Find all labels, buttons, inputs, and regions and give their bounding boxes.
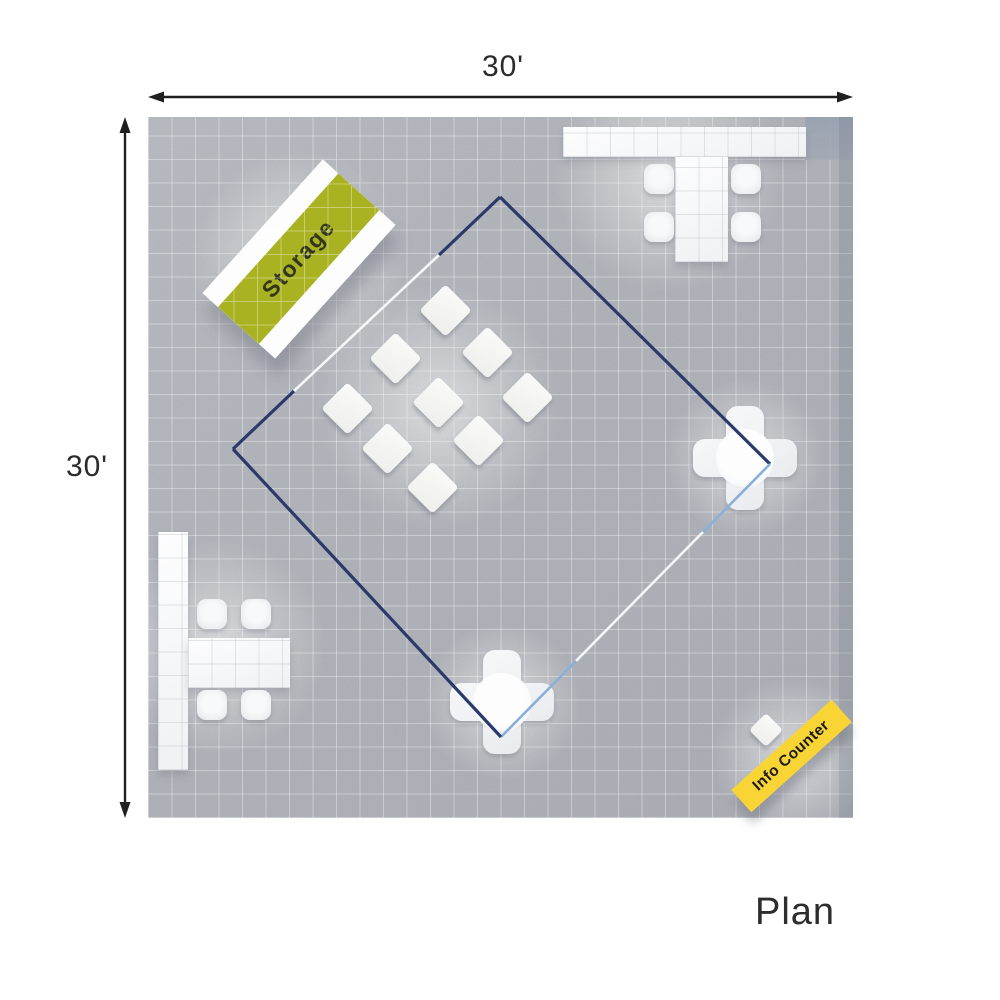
chair <box>644 164 674 194</box>
chair <box>241 690 271 720</box>
plan-caption: Plan <box>755 891 835 934</box>
exhibit-floor: Storage Info Counter <box>148 117 853 818</box>
chair <box>197 690 227 720</box>
chair <box>241 599 271 629</box>
storage-label: Storage <box>256 214 340 304</box>
cross-table-top <box>473 673 531 731</box>
height-dimension-label: 30' <box>52 450 122 484</box>
booth-plan-canvas: Storage Info Counter <box>0 0 1000 1000</box>
chair <box>197 599 227 629</box>
side-counter <box>158 532 188 770</box>
back-counter <box>563 127 806 157</box>
chair <box>731 212 761 242</box>
cross-table-top <box>716 429 774 487</box>
chair <box>731 164 761 194</box>
conference-table <box>188 638 290 688</box>
chair <box>644 212 674 242</box>
conference-table <box>675 157 728 262</box>
width-dimension-arrow <box>148 92 853 103</box>
width-dimension-label: 30' <box>448 50 558 84</box>
